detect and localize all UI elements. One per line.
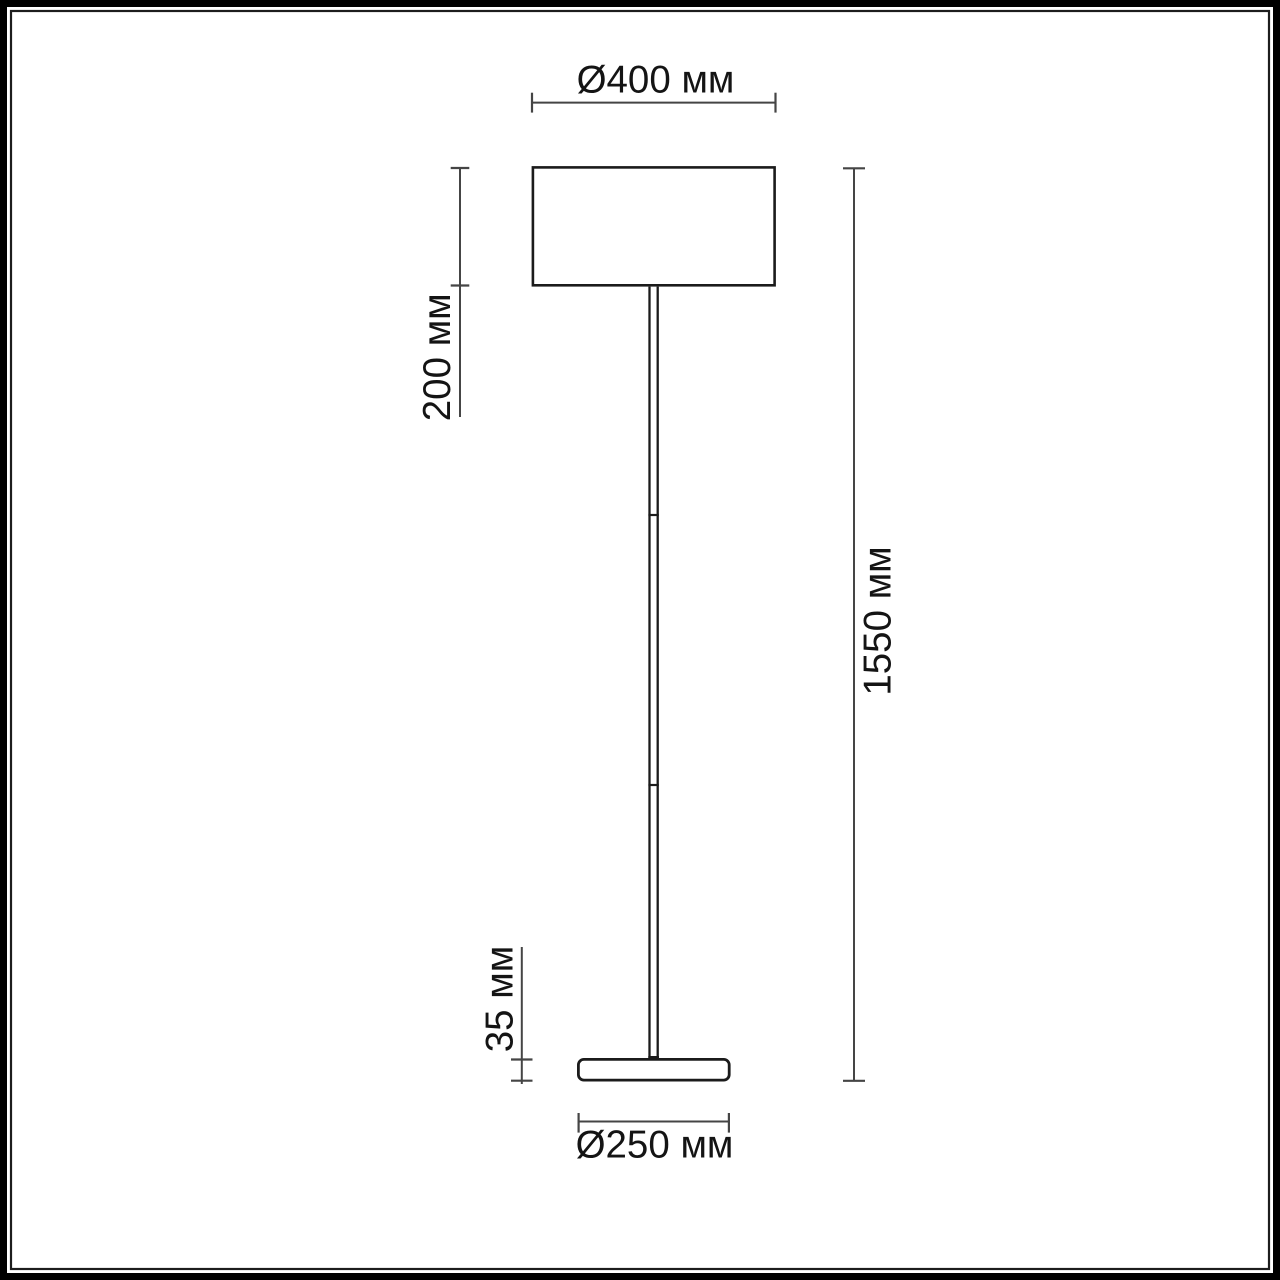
svg-text:200 мм: 200 мм bbox=[416, 293, 459, 421]
svg-text:1550 мм: 1550 мм bbox=[857, 546, 900, 695]
svg-text:Ø250 мм: Ø250 мм bbox=[576, 1124, 734, 1167]
svg-text:35 мм: 35 мм bbox=[478, 946, 521, 1052]
svg-text:Ø400 мм: Ø400 мм bbox=[577, 59, 735, 102]
